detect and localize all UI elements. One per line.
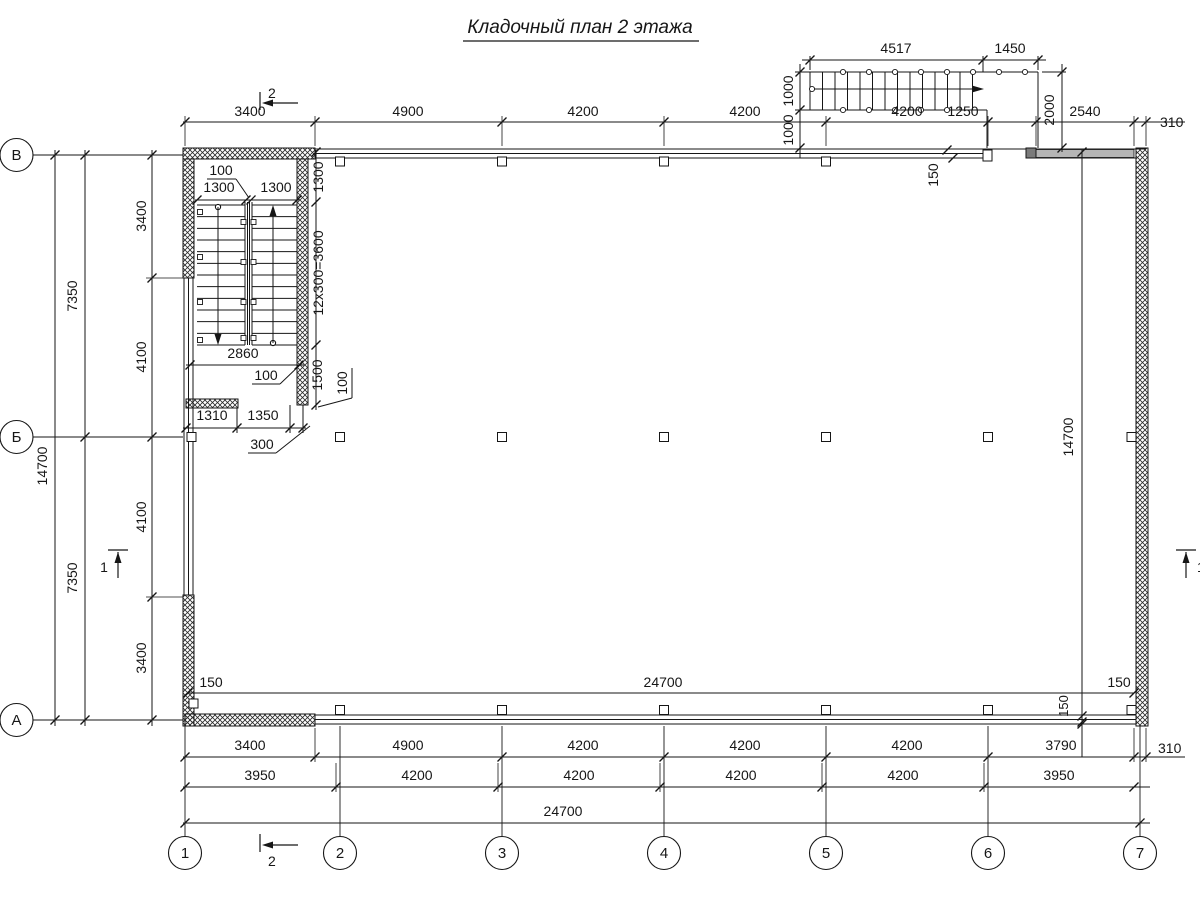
dim-label: 4200 xyxy=(567,737,598,753)
dim-label: 4900 xyxy=(392,737,423,753)
dim-label: 12x300=3600 xyxy=(310,230,326,315)
dim-label: 1000 xyxy=(780,114,796,145)
dim-label: 1310 xyxy=(196,407,227,423)
dim-label: 7350 xyxy=(64,280,80,311)
stairwell-stairs xyxy=(197,202,297,346)
dim-label: 3400 xyxy=(133,200,149,231)
axis-col-label: 3 xyxy=(498,845,506,862)
dim-label: 14700 xyxy=(1060,417,1076,456)
dim-label: 3950 xyxy=(1043,767,1074,783)
stairwell-dims: 13001300100130012x300=360015001002860100… xyxy=(182,148,353,454)
dim-label: 4900 xyxy=(392,103,423,119)
axis-col-label: 7 xyxy=(1136,845,1144,862)
dim-label: 4517 xyxy=(880,40,911,56)
dim-label: 100 xyxy=(254,367,278,383)
dim-label: 4200 xyxy=(887,767,918,783)
axis-col-label: 5 xyxy=(822,845,830,862)
dim-label: 2860 xyxy=(227,345,258,361)
plan-svg: Кладочный план 2 этажа13001300100130012x… xyxy=(0,0,1200,900)
dim-label: 3400 xyxy=(234,737,265,753)
dim-label: 1000 xyxy=(780,75,796,106)
dim-label: 150 xyxy=(199,674,223,690)
dims-right: 14700150 xyxy=(1056,148,1087,758)
dim-label: 1300 xyxy=(260,179,291,195)
masonry-plan-canvas: Кладочный план 2 этажа13001300100130012x… xyxy=(0,0,1200,900)
dims-inner-bottom: 15024700150 xyxy=(184,674,1139,698)
dim-label: 4200 xyxy=(725,767,756,783)
section-mark-top: 2 xyxy=(268,85,276,101)
dim-label: 3400 xyxy=(234,103,265,119)
dim-label: 7350 xyxy=(64,562,80,593)
axis-row-label: А xyxy=(11,712,21,729)
dim-label: 1450 xyxy=(994,40,1025,56)
dim-label: 300 xyxy=(250,436,274,452)
dim-label: 1350 xyxy=(247,407,278,423)
dim-label: 100 xyxy=(334,371,350,395)
dims-bottom: 3400490042004200420037903103950420042004… xyxy=(181,728,1186,828)
title-block: Кладочный план 2 этажа xyxy=(463,17,699,41)
dims-left: 34004100410034007350735014700 xyxy=(34,150,183,726)
drawing-title: Кладочный план 2 этажа xyxy=(467,17,692,38)
dim-label: 150 xyxy=(1056,695,1071,717)
section-mark-left: 1 xyxy=(100,559,108,575)
dim-label: 4200 xyxy=(567,103,598,119)
axis-row-label: Б xyxy=(12,429,22,446)
dim-label: 1250 xyxy=(947,103,978,119)
dims-top: 3400490042004200420012502540310 xyxy=(181,103,1186,146)
dim-label: 1300 xyxy=(310,161,326,192)
axis-row-label: В xyxy=(11,147,21,164)
dim-label: 1300 xyxy=(203,179,234,195)
dim-label: 4200 xyxy=(563,767,594,783)
dim-label: 4200 xyxy=(891,103,922,119)
axis-col-label: 6 xyxy=(984,845,992,862)
section-mark-bottom: 2 xyxy=(268,853,276,869)
dim-label: 24700 xyxy=(644,674,683,690)
dim-label: 3950 xyxy=(244,767,275,783)
axis-col-label: 1 xyxy=(181,845,189,862)
dim-label: 150 xyxy=(1107,674,1131,690)
axis-col-label: 4 xyxy=(660,845,668,862)
dim-label: 150 xyxy=(925,163,941,187)
dim-label: 2540 xyxy=(1069,103,1100,119)
dim-label: 1500 xyxy=(309,359,325,390)
dim-label: 2000 xyxy=(1041,94,1057,125)
axis-col-label: 2 xyxy=(336,845,344,862)
dim-label: 4100 xyxy=(133,501,149,532)
dim-label: 100 xyxy=(209,162,233,178)
dim-label: 3790 xyxy=(1045,737,1076,753)
dim-label: 4200 xyxy=(729,737,760,753)
dim-label: 4200 xyxy=(729,103,760,119)
dim-label: 310 xyxy=(1158,740,1182,756)
dim-label: 4200 xyxy=(401,767,432,783)
dim-label: 4200 xyxy=(891,737,922,753)
dim-label: 310 xyxy=(1160,114,1184,130)
dim-label: 4100 xyxy=(133,341,149,372)
external-stair xyxy=(809,69,1038,161)
axis-markers: ВБА1234567 xyxy=(0,139,1157,870)
dim-label: 3400 xyxy=(133,642,149,673)
dim-label: 14700 xyxy=(34,446,50,485)
columns xyxy=(187,157,1136,715)
dim-label: 24700 xyxy=(544,803,583,819)
